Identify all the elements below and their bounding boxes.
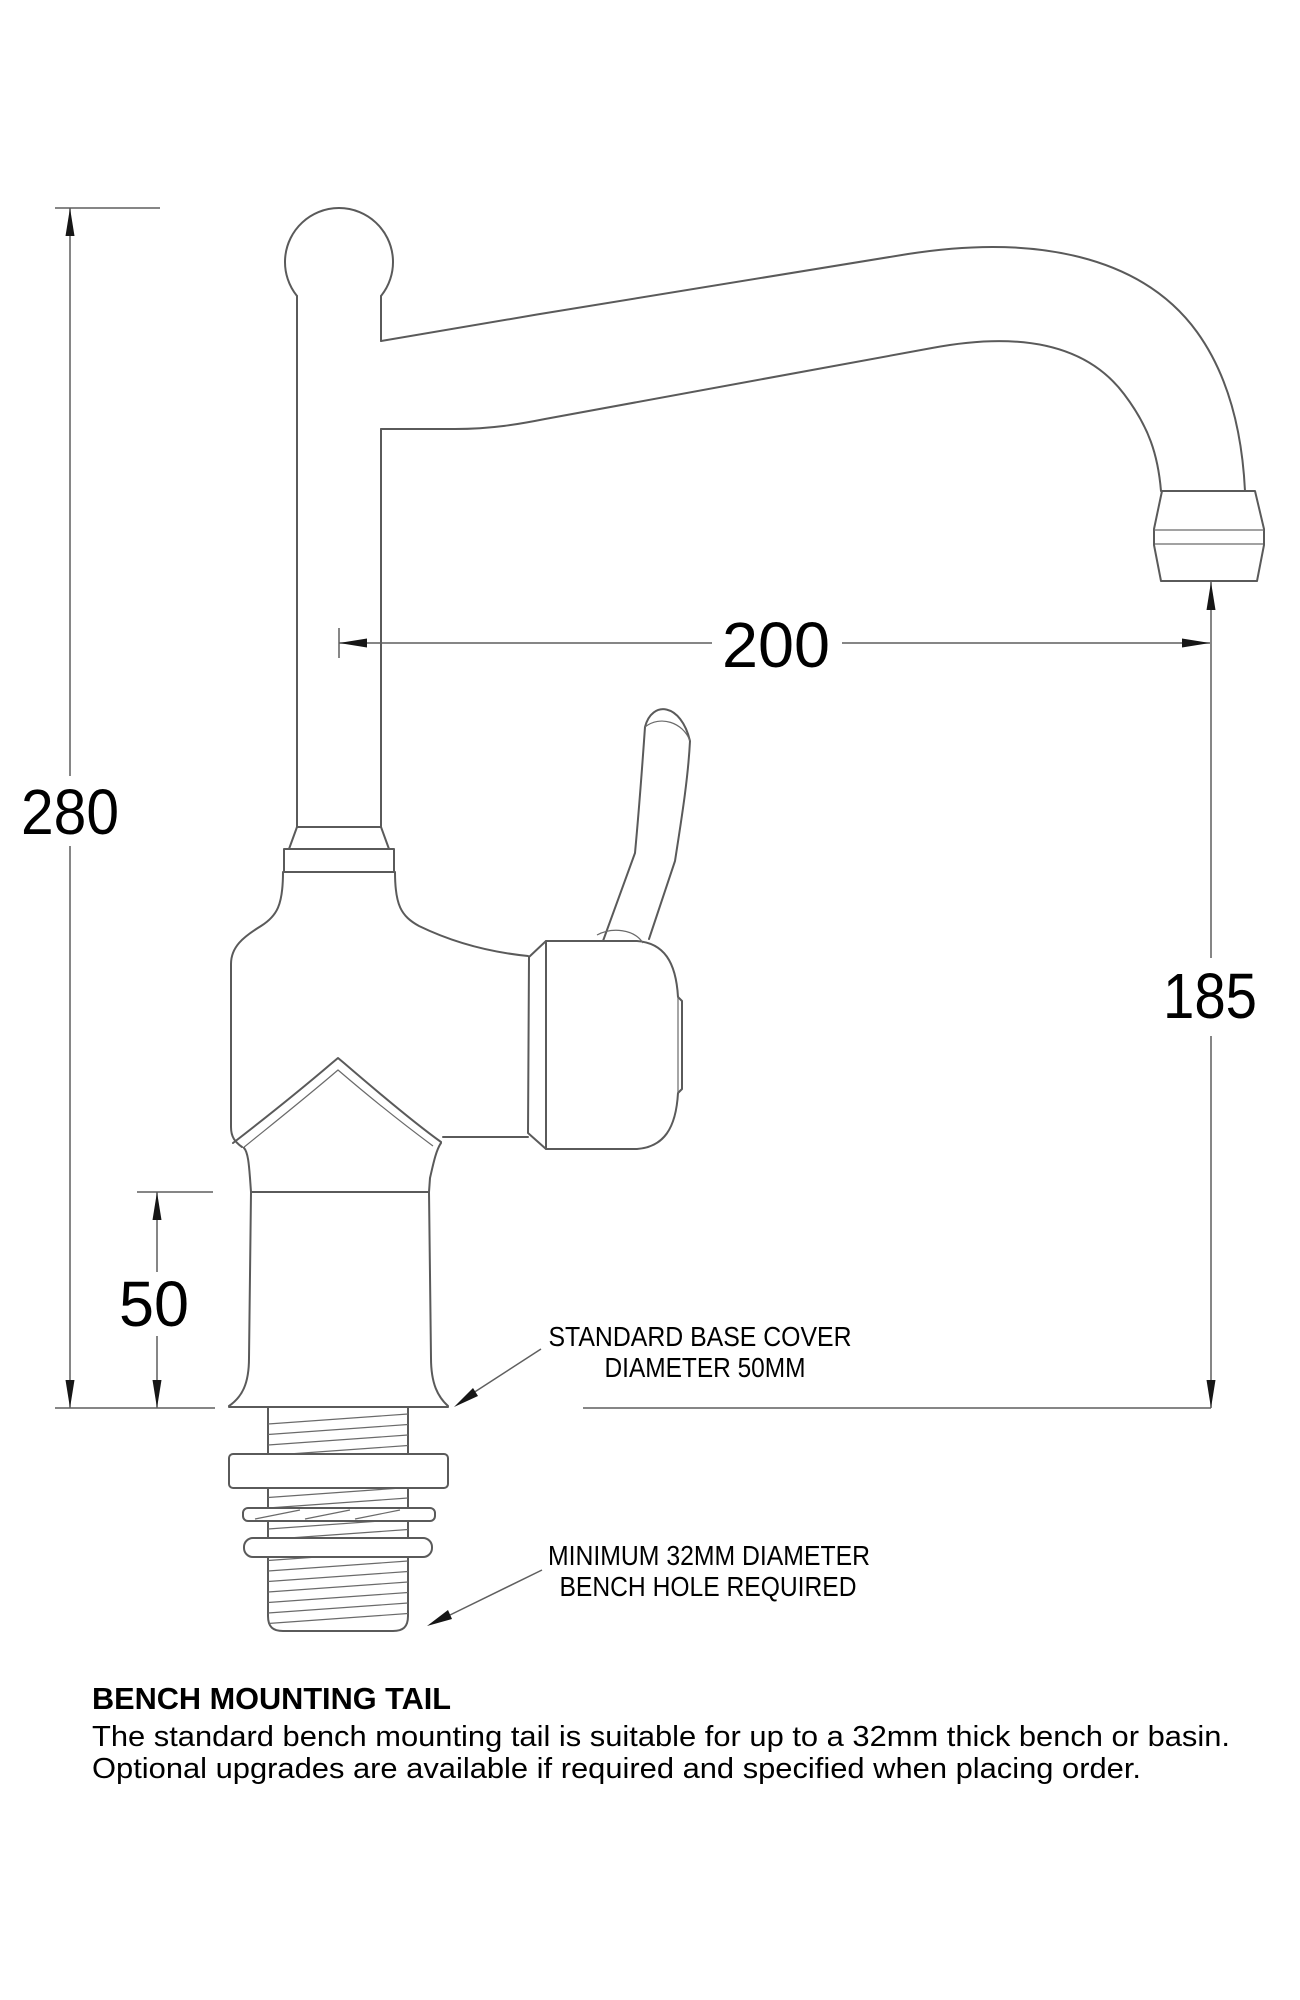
bench-hole-label-line1: MINIMUM 32MM DIAMETER xyxy=(548,1540,870,1571)
bench-hole-label-line2: BENCH HOLE REQUIRED xyxy=(560,1571,857,1602)
washer-upper xyxy=(243,1508,435,1521)
faucet-dimension-diagram: 280 200 185 50 STANDARD BASE COVER DIAME… xyxy=(0,0,1300,2000)
locknut xyxy=(229,1454,448,1488)
notes-body-line2: Optional upgrades are available if requi… xyxy=(92,1753,1141,1785)
dim-280-label: 280 xyxy=(21,776,119,848)
notes-body-line1: The standard bench mounting tail is suit… xyxy=(92,1721,1230,1753)
notes-heading: BENCH MOUNTING TAIL xyxy=(92,1681,451,1716)
base-cover-label-line2: DIAMETER 50MM xyxy=(605,1352,806,1383)
dim-200-label: 200 xyxy=(722,609,830,681)
dim-50-label: 50 xyxy=(119,1268,189,1340)
washer-lower xyxy=(244,1538,432,1557)
technical-drawing: 280 200 185 50 STANDARD BASE COVER DIAME… xyxy=(0,0,1300,2000)
base-cover-label-line1: STANDARD BASE COVER xyxy=(549,1321,852,1352)
dim-185-label: 185 xyxy=(1163,960,1257,1032)
